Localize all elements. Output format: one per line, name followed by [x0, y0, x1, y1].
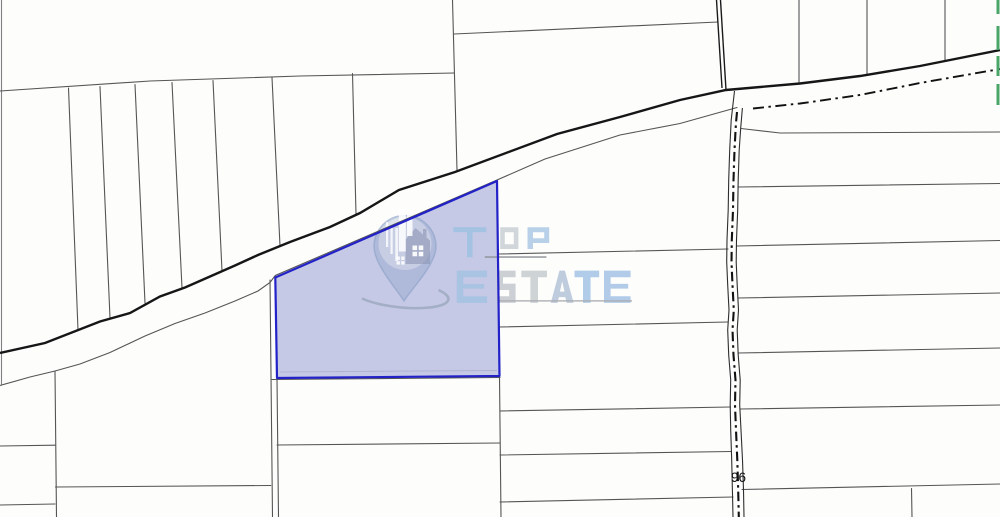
svg-text:96: 96 — [731, 470, 746, 485]
